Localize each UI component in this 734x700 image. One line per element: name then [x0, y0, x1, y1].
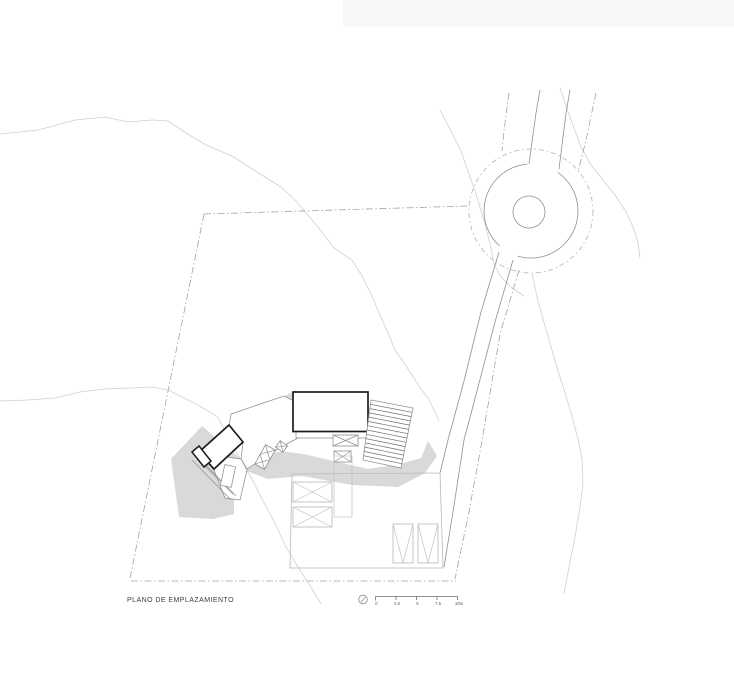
main-roof-plan: [293, 392, 368, 432]
driveway-edge-left: [440, 252, 499, 473]
legend: 0 2.5 5 7.5 10m: [359, 595, 464, 606]
contour-line: [560, 88, 640, 258]
contour-line: [532, 274, 583, 594]
scale-tick-label: 2.5: [394, 601, 401, 606]
site-plan-drawing: 0 2.5 5 7.5 10m PLANO DE EMPLAZAMIENTO: [0, 0, 734, 700]
roundabout: [469, 149, 593, 273]
boundary-top: [204, 206, 467, 214]
scale-tick-label: 7.5: [435, 601, 442, 606]
roundabout-outer-dashed-circle: [469, 149, 593, 273]
parking-bay: [418, 524, 438, 563]
boundary-road-stub-left: [502, 93, 509, 151]
planter-bed: [293, 507, 332, 527]
courtyard-outline: [290, 473, 443, 568]
boundary-road-stub-right: [578, 93, 596, 172]
roundabout-island: [513, 196, 545, 228]
drawing-title: PLANO DE EMPLAZAMIENTO: [127, 597, 234, 604]
parking-bay: [393, 524, 413, 563]
north-indicator-icon: [359, 595, 368, 604]
scale-tick-label: 10m: [455, 601, 464, 606]
boundary-left: [130, 214, 204, 578]
scale-tick-label: 0: [375, 601, 378, 606]
crossed-fixture: [334, 451, 351, 462]
scale-tick-label: 5: [416, 601, 419, 606]
crossed-fixture: [333, 435, 358, 446]
scale-bar: 0 2.5 5 7.5 10m: [375, 597, 463, 607]
upper-road-edge-left: [529, 90, 540, 164]
boundary-along-driveway: [455, 270, 519, 579]
site-plan-page: 0 2.5 5 7.5 10m PLANO DE EMPLAZAMIENTO: [0, 0, 734, 700]
roundabout-gap-top: [528, 161, 561, 168]
roundabout-gap-driveway: [498, 249, 516, 259]
roundabout-drive-circle: [484, 164, 578, 258]
page-top-band: [343, 0, 734, 27]
driveway-edge-right: [444, 260, 513, 567]
planter-bed: [293, 482, 332, 502]
contour-line: [0, 117, 439, 421]
deck: [363, 400, 413, 468]
contour-line: [440, 110, 524, 296]
